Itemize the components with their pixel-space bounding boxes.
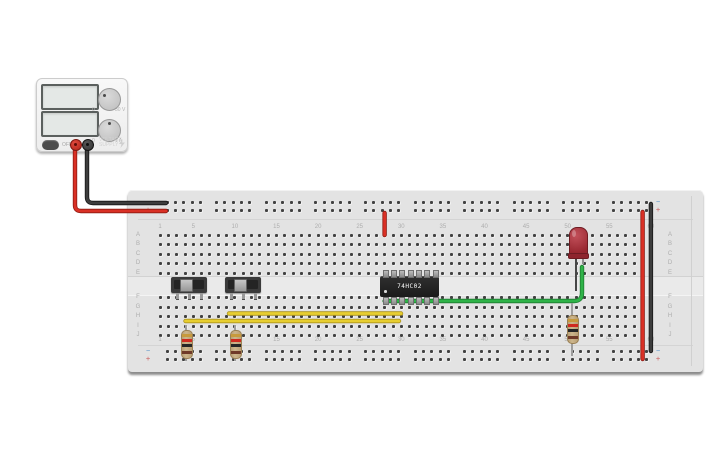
board-hole[interactable] [463,201,466,204]
board-hole[interactable] [480,350,483,353]
board-hole[interactable] [538,201,541,204]
board-hole[interactable] [562,209,565,212]
board-hole[interactable] [633,234,636,237]
board-hole[interactable] [516,306,519,309]
board-hole[interactable] [325,243,328,246]
board-hole[interactable] [600,296,603,299]
board-hole[interactable] [422,209,425,212]
board-hole[interactable] [342,253,345,256]
board-hole[interactable] [242,253,245,256]
board-hole[interactable] [516,253,519,256]
board-hole[interactable] [608,306,611,309]
board-hole[interactable] [192,262,195,265]
board-hole[interactable] [292,262,295,265]
board-hole[interactable] [513,201,516,204]
board-hole[interactable] [392,306,395,309]
board-hole[interactable] [308,315,311,318]
board-hole[interactable] [422,201,425,204]
board-hole[interactable] [649,234,652,237]
board-hole[interactable] [267,296,270,299]
board-hole[interactable] [458,296,461,299]
board-hole[interactable] [491,325,494,328]
board-hole[interactable] [258,253,261,256]
board-hole[interactable] [562,201,565,204]
board-hole[interactable] [389,358,392,361]
board-hole[interactable] [608,234,611,237]
board-hole[interactable] [250,315,253,318]
board-hole[interactable] [641,234,644,237]
board-hole[interactable] [273,358,276,361]
board-hole[interactable] [192,325,195,328]
board-hole[interactable] [491,296,494,299]
board-hole[interactable] [308,296,311,299]
board-hole[interactable] [450,315,453,318]
board-hole[interactable] [397,350,400,353]
board-hole[interactable] [541,334,544,337]
board-hole[interactable] [624,262,627,265]
board-hole[interactable] [233,306,236,309]
board-hole[interactable] [400,253,403,256]
board-hole[interactable] [250,234,253,237]
board-hole[interactable] [283,296,286,299]
board-hole[interactable] [200,325,203,328]
board-hole[interactable] [587,358,590,361]
positive-terminal[interactable] [70,139,82,151]
board-hole[interactable] [400,262,403,265]
board-hole[interactable] [225,306,228,309]
board-hole[interactable] [314,201,317,204]
board-hole[interactable] [508,315,511,318]
board-hole[interactable] [342,306,345,309]
board-hole[interactable] [600,325,603,328]
board-hole[interactable] [425,234,428,237]
board-hole[interactable] [483,262,486,265]
board-hole[interactable] [372,201,375,204]
board-hole[interactable] [439,350,442,353]
board-hole[interactable] [645,209,648,212]
board-hole[interactable] [612,350,615,353]
board-hole[interactable] [483,272,486,275]
board-hole[interactable] [533,262,536,265]
board-hole[interactable] [273,350,276,353]
board-hole[interactable] [508,234,511,237]
board-hole[interactable] [624,272,627,275]
board-hole[interactable] [591,243,594,246]
board-hole[interactable] [516,243,519,246]
board-hole[interactable] [571,358,574,361]
board-hole[interactable] [208,253,211,256]
board-hole[interactable] [184,234,187,237]
board-hole[interactable] [375,262,378,265]
board-hole[interactable] [608,243,611,246]
resistor-2[interactable] [229,325,241,361]
board-hole[interactable] [292,306,295,309]
board-hole[interactable] [500,253,503,256]
board-hole[interactable] [414,350,417,353]
board-hole[interactable] [275,306,278,309]
board-hole[interactable] [620,209,623,212]
board-hole[interactable] [383,306,386,309]
board-hole[interactable] [317,296,320,299]
board-hole[interactable] [458,234,461,237]
board-hole[interactable] [174,358,177,361]
board-hole[interactable] [521,201,524,204]
board-hole[interactable] [275,262,278,265]
board-hole[interactable] [208,272,211,275]
board-hole[interactable] [314,358,317,361]
board-hole[interactable] [383,262,386,265]
board-hole[interactable] [466,315,469,318]
board-hole[interactable] [529,201,532,204]
board-hole[interactable] [600,262,603,265]
board-hole[interactable] [641,243,644,246]
board-hole[interactable] [208,262,211,265]
board-hole[interactable] [389,350,392,353]
board-hole[interactable] [508,253,511,256]
board-hole[interactable] [199,201,202,204]
board-hole[interactable] [558,253,561,256]
board-hole[interactable] [483,253,486,256]
board-hole[interactable] [649,306,652,309]
board-hole[interactable] [416,243,419,246]
board-hole[interactable] [225,315,228,318]
switch-slider[interactable] [180,279,193,292]
board-hole[interactable] [491,272,494,275]
board-hole[interactable] [267,315,270,318]
board-hole[interactable] [558,262,561,265]
board-hole[interactable] [308,243,311,246]
board-hole[interactable] [258,306,261,309]
board-hole[interactable] [323,201,326,204]
board-hole[interactable] [645,358,648,361]
board-hole[interactable] [441,253,444,256]
board-hole[interactable] [267,272,270,275]
board-hole[interactable] [225,262,228,265]
board-hole[interactable] [281,358,284,361]
board-hole[interactable] [325,262,328,265]
board-hole[interactable] [441,262,444,265]
board-hole[interactable] [323,350,326,353]
board-hole[interactable] [233,243,236,246]
board-hole[interactable] [529,358,532,361]
board-hole[interactable] [383,325,386,328]
board-hole[interactable] [637,358,640,361]
board-hole[interactable] [483,325,486,328]
board-hole[interactable] [166,358,169,361]
board-hole[interactable] [641,306,644,309]
board-hole[interactable] [350,243,353,246]
board-hole[interactable] [358,306,361,309]
board-hole[interactable] [400,243,403,246]
board-hole[interactable] [275,234,278,237]
board-hole[interactable] [629,358,632,361]
board-hole[interactable] [383,334,386,337]
board-hole[interactable] [342,262,345,265]
board-hole[interactable] [571,201,574,204]
board-hole[interactable] [500,243,503,246]
board-hole[interactable] [308,306,311,309]
board-hole[interactable] [624,234,627,237]
board-hole[interactable] [300,306,303,309]
board-hole[interactable] [367,325,370,328]
board-hole[interactable] [300,243,303,246]
board-hole[interactable] [199,209,202,212]
board-hole[interactable] [267,243,270,246]
board-hole[interactable] [367,296,370,299]
board-hole[interactable] [192,315,195,318]
board-hole[interactable] [333,296,336,299]
board-hole[interactable] [174,350,177,353]
board-hole[interactable] [466,296,469,299]
board-hole[interactable] [591,272,594,275]
board-hole[interactable] [525,315,528,318]
board-hole[interactable] [480,209,483,212]
board-hole[interactable] [392,315,395,318]
board-hole[interactable] [550,315,553,318]
board-hole[interactable] [267,325,270,328]
board-hole[interactable] [441,306,444,309]
board-hole[interactable] [645,201,648,204]
board-hole[interactable] [649,272,652,275]
board-hole[interactable] [333,334,336,337]
board-hole[interactable] [641,253,644,256]
board-hole[interactable] [624,296,627,299]
board-hole[interactable] [463,209,466,212]
board-hole[interactable] [175,234,178,237]
board-hole[interactable] [612,201,615,204]
board-hole[interactable] [430,209,433,212]
board-hole[interactable] [232,201,235,204]
board-hole[interactable] [325,296,328,299]
board-hole[interactable] [425,262,428,265]
board-hole[interactable] [475,306,478,309]
board-hole[interactable] [208,315,211,318]
board-hole[interactable] [174,201,177,204]
board-hole[interactable] [508,272,511,275]
board-hole[interactable] [624,315,627,318]
board-hole[interactable] [250,243,253,246]
board-hole[interactable] [496,201,499,204]
board-hole[interactable] [583,334,586,337]
board-hole[interactable] [633,315,636,318]
board-hole[interactable] [275,315,278,318]
board-hole[interactable] [217,325,220,328]
board-hole[interactable] [392,325,395,328]
board-hole[interactable] [292,253,295,256]
board-hole[interactable] [159,325,162,328]
board-hole[interactable] [167,262,170,265]
board-hole[interactable] [381,358,384,361]
board-hole[interactable] [616,262,619,265]
board-hole[interactable] [159,272,162,275]
board-hole[interactable] [480,358,483,361]
board-hole[interactable] [558,272,561,275]
board-hole[interactable] [333,272,336,275]
board-hole[interactable] [375,325,378,328]
board-hole[interactable] [208,334,211,337]
board-hole[interactable] [342,243,345,246]
board-hole[interactable] [175,315,178,318]
board-hole[interactable] [612,358,615,361]
board-hole[interactable] [441,272,444,275]
board-hole[interactable] [215,201,218,204]
board-hole[interactable] [283,243,286,246]
board-hole[interactable] [217,243,220,246]
board-hole[interactable] [450,296,453,299]
board-hole[interactable] [533,306,536,309]
board-hole[interactable] [624,306,627,309]
board-hole[interactable] [422,350,425,353]
board-hole[interactable] [624,243,627,246]
board-hole[interactable] [208,243,211,246]
board-hole[interactable] [458,306,461,309]
board-hole[interactable] [596,209,599,212]
board-hole[interactable] [389,209,392,212]
board-hole[interactable] [430,201,433,204]
board-hole[interactable] [533,272,536,275]
board-hole[interactable] [342,296,345,299]
board-hole[interactable] [596,358,599,361]
board-hole[interactable] [375,306,378,309]
board-hole[interactable] [292,272,295,275]
board-hole[interactable] [458,253,461,256]
board-hole[interactable] [375,272,378,275]
board-hole[interactable] [175,334,178,337]
negative-terminal[interactable] [82,139,94,151]
board-hole[interactable] [500,334,503,337]
board-hole[interactable] [375,334,378,337]
board-hole[interactable] [483,234,486,237]
board-hole[interactable] [488,358,491,361]
board-hole[interactable] [200,272,203,275]
board-hole[interactable] [392,234,395,237]
board-hole[interactable] [583,296,586,299]
board-hole[interactable] [558,234,561,237]
board-hole[interactable] [633,262,636,265]
board-hole[interactable] [383,243,386,246]
board-hole[interactable] [281,209,284,212]
board-hole[interactable] [348,201,351,204]
board-hole[interactable] [533,315,536,318]
board-hole[interactable] [367,243,370,246]
board-hole[interactable] [250,272,253,275]
board-hole[interactable] [225,253,228,256]
board-hole[interactable] [217,315,220,318]
board-hole[interactable] [283,262,286,265]
board-hole[interactable] [645,350,648,353]
board-hole[interactable] [521,358,524,361]
board-hole[interactable] [225,272,228,275]
board-hole[interactable] [325,306,328,309]
board-hole[interactable] [167,272,170,275]
board-hole[interactable] [348,358,351,361]
board-hole[interactable] [414,201,417,204]
board-hole[interactable] [275,253,278,256]
board-hole[interactable] [192,296,195,299]
board-hole[interactable] [620,358,623,361]
board-hole[interactable] [525,262,528,265]
board-hole[interactable] [348,350,351,353]
board-hole[interactable] [616,243,619,246]
board-hole[interactable] [333,253,336,256]
board-hole[interactable] [290,358,293,361]
board-hole[interactable] [408,243,411,246]
board-hole[interactable] [265,201,268,204]
board-hole[interactable] [616,315,619,318]
board-hole[interactable] [441,243,444,246]
board-hole[interactable] [200,306,203,309]
board-hole[interactable] [466,234,469,237]
board-hole[interactable] [298,358,301,361]
board-hole[interactable] [550,334,553,337]
board-hole[interactable] [199,358,202,361]
board-hole[interactable] [233,253,236,256]
board-hole[interactable] [233,296,236,299]
board-hole[interactable] [192,272,195,275]
board-hole[interactable] [283,306,286,309]
board-hole[interactable] [541,296,544,299]
board-hole[interactable] [450,272,453,275]
board-hole[interactable] [292,315,295,318]
board-hole[interactable] [541,315,544,318]
board-hole[interactable] [583,306,586,309]
board-hole[interactable] [475,262,478,265]
board-hole[interactable] [383,234,386,237]
board-hole[interactable] [184,272,187,275]
board-hole[interactable] [325,325,328,328]
board-hole[interactable] [317,262,320,265]
board-hole[interactable] [325,234,328,237]
board-hole[interactable] [608,296,611,299]
board-hole[interactable] [641,315,644,318]
board-hole[interactable] [281,350,284,353]
board-hole[interactable] [458,243,461,246]
board-hole[interactable] [300,272,303,275]
board-hole[interactable] [298,350,301,353]
board-hole[interactable] [250,334,253,337]
board-hole[interactable] [292,243,295,246]
board-hole[interactable] [541,253,544,256]
board-hole[interactable] [591,315,594,318]
board-hole[interactable] [392,243,395,246]
board-hole[interactable] [350,253,353,256]
board-hole[interactable] [430,350,433,353]
board-hole[interactable] [342,334,345,337]
board-hole[interactable] [458,325,461,328]
board-hole[interactable] [250,306,253,309]
board-hole[interactable] [616,325,619,328]
board-hole[interactable] [265,209,268,212]
board-hole[interactable] [450,234,453,237]
board-hole[interactable] [167,253,170,256]
board-hole[interactable] [425,306,428,309]
board-hole[interactable] [483,306,486,309]
board-hole[interactable] [596,350,599,353]
board-hole[interactable] [323,209,326,212]
slide-switch-1[interactable] [171,277,207,293]
board-hole[interactable] [191,201,194,204]
board-hole[interactable] [364,201,367,204]
board-hole[interactable] [199,350,202,353]
board-hole[interactable] [558,315,561,318]
board-hole[interactable] [389,201,392,204]
board-hole[interactable] [367,262,370,265]
board-hole[interactable] [616,253,619,256]
board-hole[interactable] [397,358,400,361]
board-hole[interactable] [624,253,627,256]
board-hole[interactable] [483,315,486,318]
board-hole[interactable] [480,201,483,204]
